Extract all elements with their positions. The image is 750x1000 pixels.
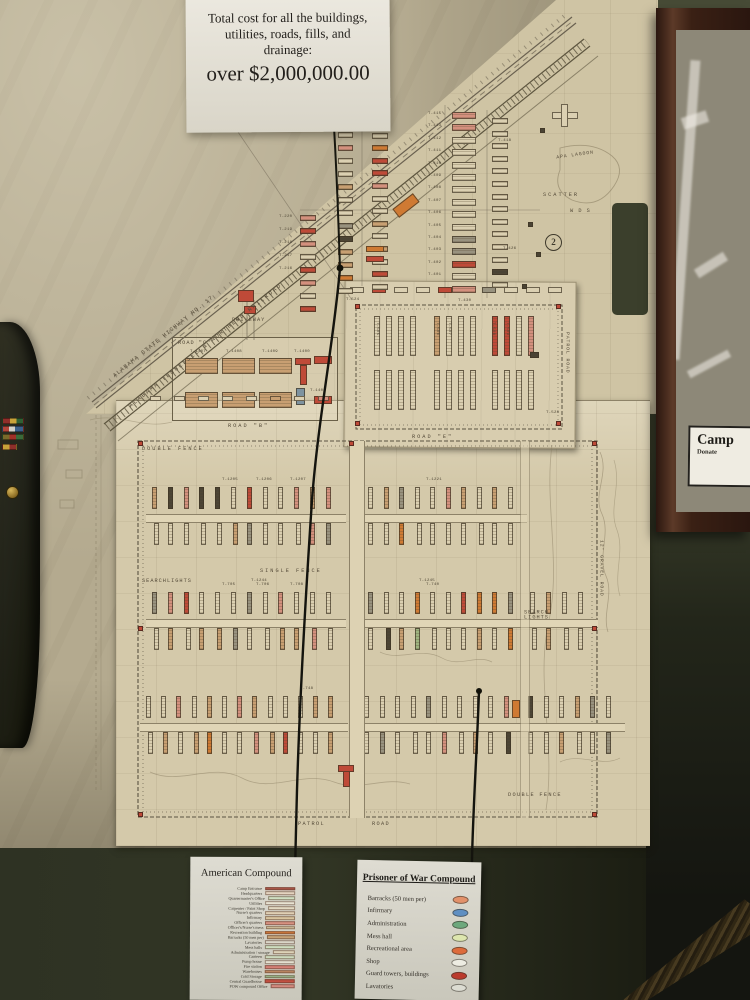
road-b-label: ROAD "B" [228, 423, 269, 429]
legend-color-swatch [265, 960, 295, 964]
legend-pow-title: Prisoner of War Compound [357, 873, 481, 886]
legend-item: POW compound Office [190, 984, 302, 989]
frame-caption-title: Camp [697, 433, 750, 450]
legend-color-swatch [452, 909, 468, 917]
legend-color-swatch [453, 896, 469, 904]
scatter-label: SCATTER [543, 192, 579, 198]
single-fence-label: SINGLE FENCE [260, 568, 322, 574]
legend-item-label: Administration [367, 920, 452, 929]
legend-color-swatch [265, 887, 295, 891]
searchlights-right-label: SEARCH LIGHTS [524, 610, 550, 621]
legend-item-label: Mess halls [227, 945, 262, 950]
legend-color-swatch [265, 921, 295, 925]
legend-color-swatch [451, 959, 467, 967]
legend-color-swatch [265, 931, 295, 935]
legend-item-label: Headquarters [227, 891, 262, 896]
legend-color-swatch [265, 916, 295, 920]
legend-card-pow: Prisoner of War Compound Barracks (50 me… [355, 860, 482, 1000]
road-e-label: ROAD "E" [412, 434, 453, 440]
wds-label: W D S [570, 208, 591, 214]
gravel-road-label: 12' GRAVEL ROAD [599, 540, 604, 597]
legend-item-label: Lavatories [366, 983, 451, 992]
legend-item-label: Mess hall [367, 933, 452, 942]
legend-american-list: Camp EntranceHeadquartersQuartermaster's… [190, 886, 303, 989]
legend-color-swatch [265, 955, 295, 959]
legend-item-label: Barracks (50 men per) [368, 895, 453, 904]
legend-color-swatch [265, 965, 295, 969]
museum-camp-map-display: T-415T-413T-412T-411T-410T-409T-408T-407… [0, 0, 750, 1000]
double-fence-top-label: DOUBLE FENCE [142, 446, 204, 452]
cost-sign-line2: utilities, roads, fills, and [186, 25, 390, 42]
legend-color-swatch [265, 970, 295, 974]
road-c-label: ROAD "C" [178, 340, 211, 346]
legend-color-swatch [273, 950, 295, 954]
legend-item-label: Central Guardhouse [227, 979, 262, 984]
service-ribbon [2, 444, 17, 450]
service-ribbon [2, 426, 24, 432]
legend-item: Lavatories [355, 980, 479, 995]
legend-item-label: Camp Entrance [227, 886, 262, 891]
legend-item-label: Cold Storage [227, 974, 262, 979]
glass-glare [676, 60, 700, 360]
road-bottom-label: ROAD [372, 821, 390, 827]
legend-color-swatch [265, 945, 295, 949]
searchlights-left-label: SEARCHLIGHTS [142, 578, 192, 584]
patrol-road-label: PATROL ROAD [565, 332, 570, 374]
legend-item-label: Guard towers, buildings [366, 970, 451, 979]
legend-item-label: Infirmary [367, 907, 452, 916]
legend-card-american: American Compound Camp EntranceHeadquart… [190, 857, 303, 1000]
legend-color-swatch [270, 984, 294, 988]
legend-color-swatch [268, 896, 295, 900]
frame-caption-subtitle: Donate [697, 449, 750, 457]
glass-glare [687, 350, 731, 379]
legend-color-swatch [265, 901, 295, 905]
cost-sign-line3: drainage: [186, 41, 390, 58]
legend-color-swatch [452, 946, 468, 954]
map-sheet-main-compound [116, 400, 650, 846]
cost-sign-amount: over $2,000,000.00 [186, 60, 390, 86]
military-uniform-sleeve [0, 322, 46, 750]
legend-color-swatch [452, 921, 468, 929]
legend-item-label: Barracks (50 men per) [228, 935, 264, 940]
legend-color-swatch [268, 906, 295, 910]
legend-item-label: POW compound Office [230, 984, 268, 989]
legend-color-swatch [265, 892, 295, 896]
legend-color-swatch [452, 934, 468, 942]
legend-item-label: Quartermaster's Office [228, 896, 264, 901]
legend-color-swatch [265, 940, 295, 944]
glass-glare [694, 252, 728, 278]
legend-color-swatch [451, 972, 467, 980]
frame-caption-card: Camp Donate [688, 425, 750, 487]
legend-color-swatch [265, 975, 295, 979]
double-fence-bottom-label: DOUBLE FENCE [508, 792, 562, 798]
brass-button [6, 486, 19, 499]
legend-color-swatch [265, 911, 295, 915]
legend-item-label: Lavatories [227, 940, 262, 945]
uniform-body [0, 322, 40, 748]
circled-number: 2 [545, 234, 562, 251]
legend-item-label: Recreation building [227, 930, 262, 935]
service-ribbon [2, 434, 24, 440]
legend-color-swatch [267, 936, 295, 940]
map-sheet-inset-compound [343, 280, 576, 449]
wall-gap [612, 203, 648, 315]
cost-sign-line1: Total cost for all the buildings, [186, 9, 390, 26]
legend-item-label: Utilities [227, 901, 262, 906]
driveway-label: DRIVEWAY [232, 317, 265, 323]
legend-american-title: American Compound [190, 868, 302, 880]
legend-color-swatch [266, 926, 295, 930]
patrol-bottom-label: PATROL [298, 821, 325, 827]
legend-color-swatch [451, 984, 467, 992]
picture-frame: Camp Donate [656, 8, 750, 532]
legend-pow-list: Barracks (50 men per)InfirmaryAdministra… [355, 892, 481, 995]
legend-item-label: Shop [366, 958, 451, 967]
cost-sign: Total cost for all the buildings, utilit… [186, 0, 391, 133]
legend-color-swatch [265, 980, 295, 984]
service-ribbon [2, 418, 24, 424]
legend-item-label: Recreational area [367, 945, 452, 954]
